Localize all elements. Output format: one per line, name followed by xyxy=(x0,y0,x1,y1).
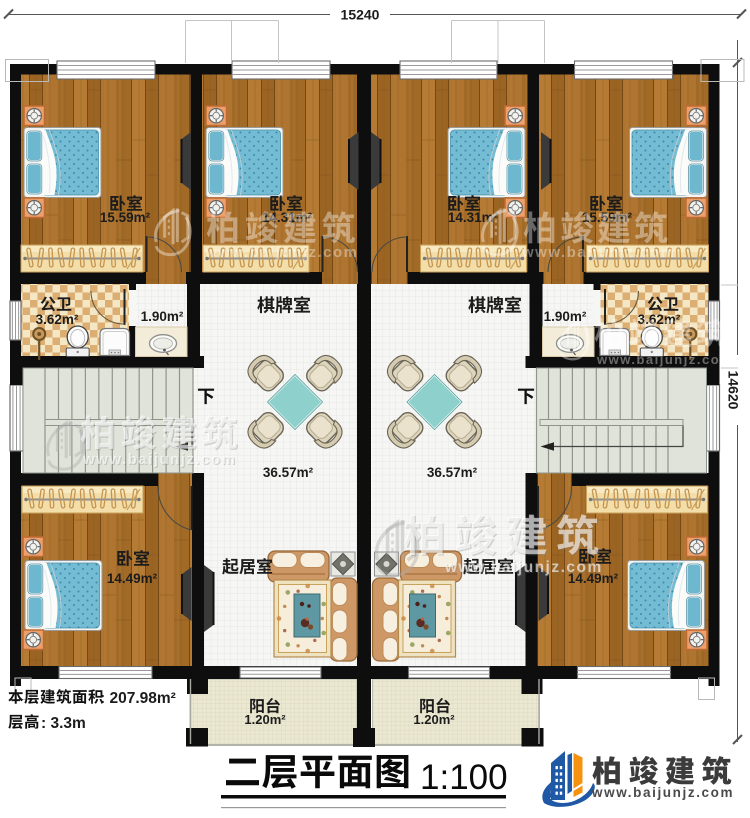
svg-text:14620: 14620 xyxy=(726,371,742,410)
svg-text:1.20m²: 1.20m² xyxy=(244,712,286,727)
svg-text:1.20m²: 1.20m² xyxy=(413,712,455,727)
svg-text:1:100: 1:100 xyxy=(420,758,508,797)
svg-text:14.49m²: 14.49m² xyxy=(107,571,158,586)
svg-text:: 3.3m: : 3.3m xyxy=(41,715,86,732)
svg-text:: 207.98m²: : 207.98m² xyxy=(100,690,176,707)
svg-text:www.baijunjz.com: www.baijunjz.com xyxy=(521,244,675,261)
svg-text:www.baijunjz.com: www.baijunjz.com xyxy=(204,244,358,261)
svg-text:15240: 15240 xyxy=(341,7,380,23)
svg-text:www.baijunjz.com: www.baijunjz.com xyxy=(596,352,733,367)
svg-text:36.57m²: 36.57m² xyxy=(427,465,478,480)
svg-text:3.62m²: 3.62m² xyxy=(36,312,79,327)
svg-text:15.59m²: 15.59m² xyxy=(100,210,151,225)
svg-text:www.baijunjz.com: www.baijunjz.com xyxy=(82,451,236,468)
svg-text:1.90m²: 1.90m² xyxy=(544,309,587,324)
svg-text:36.57m²: 36.57m² xyxy=(263,465,314,480)
svg-text:1.90m²: 1.90m² xyxy=(141,309,184,324)
svg-text:www.baijunjz.com: www.baijunjz.com xyxy=(591,785,734,800)
svg-text:www.baijunjz.com: www.baijunjz.com xyxy=(444,559,603,576)
